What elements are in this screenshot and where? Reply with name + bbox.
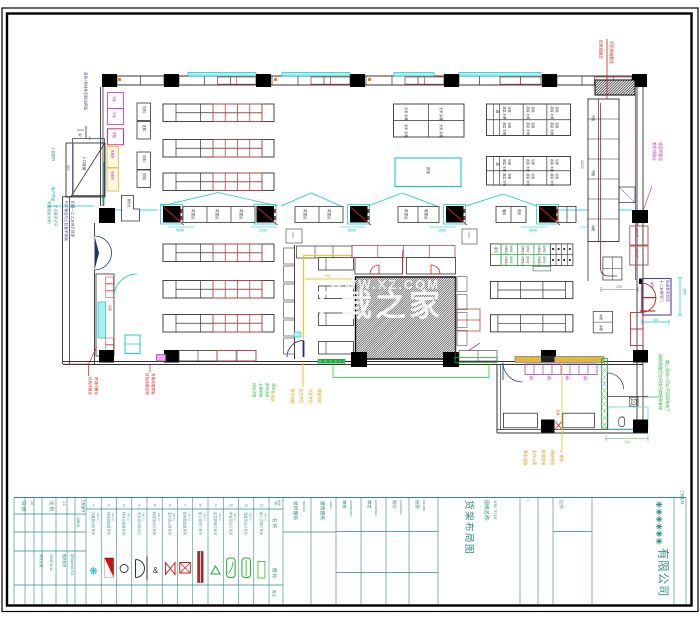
svg-text:配电: 配电 <box>556 410 560 416</box>
svg-text:2: 2 <box>108 504 110 508</box>
svg-text:货架: 货架 <box>508 159 513 165</box>
svg-text:收银台: 收银台 <box>327 209 332 220</box>
svg-text:5000: 5000 <box>176 229 184 233</box>
svg-text:DRAWN: DRAWN <box>422 500 426 511</box>
svg-text:图纸名称:: 图纸名称: <box>483 500 490 521</box>
svg-text:紫色线路走: 紫色线路走 <box>652 142 657 161</box>
svg-text:1200: 1200 <box>259 229 267 233</box>
svg-text:散称柜: 散称柜 <box>543 246 547 254</box>
svg-text:名 称: 名 称 <box>271 518 278 529</box>
svg-text:蔬菜 水果: 蔬菜 水果 <box>503 173 508 186</box>
svg-text:ARCH: ARCH <box>329 501 333 510</box>
svg-text:WWW.XZ.COM: WWW.XZ.COM <box>330 277 440 292</box>
svg-text:熟食糕点: 熟食糕点 <box>538 256 542 266</box>
svg-text:货架: 货架 <box>555 173 560 179</box>
svg-text:防火卷帘门系列: 防火卷帘门系列 <box>198 512 203 536</box>
svg-text:熟食糕点: 熟食糕点 <box>505 246 509 256</box>
svg-text:绘图:: 绘图: <box>414 500 421 510</box>
svg-text:AB-12: AB-12 <box>111 513 115 521</box>
svg-text:冰柜: 冰柜 <box>599 325 604 331</box>
svg-text:大米 杂粮: 大米 杂粮 <box>439 124 444 138</box>
svg-text:-3 51: -3 51 <box>291 231 295 238</box>
svg-text:AB-12: AB-12 <box>218 513 222 521</box>
svg-text:面包: 面包 <box>494 247 499 253</box>
svg-text:墙面明敷设: 墙面明敷设 <box>658 142 663 161</box>
svg-text:绿色线路: 绿色线路 <box>252 383 257 398</box>
svg-text:00990 M 3b: 00990 M 3b <box>49 554 53 571</box>
svg-text:货架: 货架 <box>531 173 536 179</box>
svg-text:AB-12: AB-12 <box>172 513 176 521</box>
svg-text:散称柜: 散称柜 <box>526 256 530 264</box>
svg-text:货架: 货架 <box>555 107 560 113</box>
svg-text:专用线路预留: 专用线路预留 <box>151 373 156 395</box>
svg-text:饮料柜: 饮料柜 <box>635 249 640 258</box>
svg-text:9: 9 <box>215 504 217 508</box>
svg-text:嵌入式筒灯系列: 嵌入式筒灯系列 <box>259 512 264 536</box>
svg-text:十二米卷帘门: 十二米卷帘门 <box>660 280 665 302</box>
svg-text:11: 11 <box>244 504 248 508</box>
svg-text:收银台: 收银台 <box>303 209 308 220</box>
svg-text:小区额外: 小区额外 <box>51 147 56 162</box>
svg-text:DECOR: DECOR <box>302 501 306 513</box>
svg-text:饮料: 饮料 <box>142 173 147 180</box>
svg-text:建筑图纸:: 建筑图纸: <box>319 501 326 522</box>
svg-text:冷柜: 冷柜 <box>591 115 596 122</box>
svg-text:蔬菜 水果: 蔬菜 水果 <box>550 159 555 172</box>
svg-text:货架布局图: 货架布局图 <box>463 500 475 555</box>
svg-text:蔬菜 水果: 蔬菜 水果 <box>503 159 508 172</box>
svg-text:600: 600 <box>653 318 659 322</box>
svg-text:货柜: 货柜 <box>108 305 113 311</box>
svg-text:比例:: 比例: <box>558 500 565 510</box>
svg-text:蔬菜 水果: 蔬菜 水果 <box>550 107 555 120</box>
svg-text:散称柜: 散称柜 <box>526 246 530 254</box>
svg-text:个人联不对干: 个人联不对干 <box>54 205 59 227</box>
svg-text:双管荧光灯系列: 双管荧光灯系列 <box>244 512 249 536</box>
svg-text:工程名称:: 工程名称: <box>680 490 685 505</box>
svg-text:审定:: 审定: <box>366 500 373 510</box>
svg-text:8: 8 <box>199 504 201 508</box>
svg-text:冷柜: 冷柜 <box>112 132 117 139</box>
svg-text:PVC管自与土胶套不锈钢: PVC管自与土胶套不锈钢 <box>64 201 69 241</box>
svg-text:红色线路空调: 红色线路空调 <box>145 373 150 395</box>
svg-text:AB-12: AB-12 <box>96 513 100 521</box>
svg-text:蔬菜 水果: 蔬菜 水果 <box>526 159 531 172</box>
svg-text:冰柜: 冰柜 <box>599 314 604 320</box>
svg-text:熟食糕点: 熟食糕点 <box>538 246 542 256</box>
svg-text:蔬菜 水果: 蔬菜 水果 <box>526 173 531 186</box>
svg-text:大米 杂粮: 大米 杂粮 <box>439 107 444 121</box>
svg-text:散称柜: 散称柜 <box>543 256 547 264</box>
svg-text:安全出口指示灯: 安全出口指示灯 <box>137 512 142 536</box>
svg-text:货架: 货架 <box>555 122 560 128</box>
svg-text:货架: 货架 <box>508 122 513 128</box>
svg-text:原有线路: 原有线路 <box>265 383 270 398</box>
svg-text:预留到位: 预留到位 <box>317 389 322 404</box>
svg-text:蔬菜 水果: 蔬菜 水果 <box>550 173 555 186</box>
svg-text:冷柜专用: 冷柜专用 <box>308 389 313 404</box>
svg-text:冷柜: 冷柜 <box>591 170 596 177</box>
svg-text:货架: 货架 <box>555 159 560 165</box>
svg-text:AB-12: AB-12 <box>157 513 161 521</box>
svg-text:10: 10 <box>229 504 233 508</box>
svg-text:AB-12: AB-12 <box>142 513 146 521</box>
svg-text:EXAMINED: EXAMINED <box>374 500 378 517</box>
svg-text:图纸阶段: 图纸阶段 <box>62 554 67 568</box>
svg-text:5000: 5000 <box>529 229 537 233</box>
svg-text:散称柜: 散称柜 <box>510 246 514 254</box>
svg-text:排风扇装置系列: 排风扇装置系列 <box>106 512 111 536</box>
svg-text:比 例: 比 例 <box>48 501 55 512</box>
svg-text:❋: ❋ <box>89 567 97 578</box>
svg-text:冷藏展示柜系列: 冷藏展示柜系列 <box>91 512 96 536</box>
svg-text:APPROVED: APPROVED <box>349 500 353 518</box>
svg-text:熟食糕点: 熟食糕点 <box>521 256 525 266</box>
svg-text:&: & <box>153 566 159 575</box>
svg-text:饮料: 饮料 <box>142 106 147 113</box>
svg-text:7: 7 <box>184 504 186 508</box>
svg-text:蓝色+色线条引到位预留: 蓝色+色线条引到位预留 <box>84 72 89 110</box>
svg-text:更衣: 更衣 <box>583 376 587 382</box>
svg-text:室内消火栓系列: 室内消火栓系列 <box>167 512 172 536</box>
svg-text:主照明用: 主照明用 <box>259 383 264 398</box>
svg-text:配电箱装置系列: 配电箱装置系列 <box>183 512 188 536</box>
svg-text:咨询: 咨询 <box>517 209 522 215</box>
svg-text:蔬菜 水果: 蔬菜 水果 <box>526 107 531 120</box>
svg-text:吊顶内敷设: 吊顶内敷设 <box>94 377 99 395</box>
svg-text:疏散指示灯系列: 疏散指示灯系列 <box>152 512 157 536</box>
svg-text:每户预留: 每户预留 <box>51 187 56 202</box>
svg-text:红色线路走: 红色线路走 <box>88 377 93 395</box>
svg-text:货架: 货架 <box>508 173 513 179</box>
svg-text:AB-12: AB-12 <box>203 513 207 521</box>
svg-text:-3 51: -3 51 <box>467 231 471 238</box>
svg-text:修改次数: 修改次数 <box>39 554 44 568</box>
svg-text:下载之家: 下载之家 <box>307 288 443 323</box>
svg-text:1500: 1500 <box>438 229 446 233</box>
svg-text:促销: 促销 <box>426 167 431 174</box>
svg-text:JOB TITLE: JOB TITLE <box>493 500 498 520</box>
svg-text:吊顶内暗敷设: 吊顶内暗敷设 <box>609 41 614 64</box>
svg-text:货架: 货架 <box>531 159 536 165</box>
svg-text:3. 规格: 3. 规格 <box>559 450 564 462</box>
svg-text:11500: 11500 <box>580 160 584 169</box>
svg-text:更衣: 更衣 <box>529 376 533 382</box>
svg-text:路上改动小可以不用再布线了: 路上改动小可以不用再布线了 <box>665 360 671 412</box>
svg-text:散称柜: 散称柜 <box>510 256 514 264</box>
svg-text:收银台: 收银台 <box>404 209 409 220</box>
svg-text:冷柜: 冷柜 <box>112 96 117 103</box>
svg-text:收银台: 收银台 <box>215 209 220 220</box>
svg-text:货架: 货架 <box>531 122 536 128</box>
svg-text:收银台: 收银台 <box>239 209 244 220</box>
svg-text:收银台: 收银台 <box>191 209 196 220</box>
svg-text:12: 12 <box>259 504 263 508</box>
svg-text:卷帘: 卷帘 <box>650 282 655 288</box>
svg-text:联通宽带: 联通宽带 <box>541 450 546 465</box>
svg-text:收银台: 收银台 <box>424 209 429 220</box>
svg-text:大米 杂粮: 大米 杂粮 <box>404 124 409 138</box>
svg-text:300: 300 <box>66 165 70 171</box>
svg-text:风幕柜: 风幕柜 <box>111 150 116 159</box>
svg-text:冰柜: 冰柜 <box>591 225 596 232</box>
svg-text:饮料: 饮料 <box>142 155 147 162</box>
svg-text:饮料: 饮料 <box>142 125 147 132</box>
svg-text:蔬菜 水果: 蔬菜 水果 <box>526 122 531 135</box>
svg-text:20: 20 <box>30 501 34 505</box>
svg-text:蔬菜 水果: 蔬菜 水果 <box>550 122 555 135</box>
svg-text:CHECKED: CHECKED <box>399 500 403 516</box>
svg-text:校对:: 校对: <box>391 500 398 510</box>
svg-text:绿色线路卫生间排气扇接原有线: 绿色线路卫生间排气扇接原有线 <box>658 354 664 410</box>
svg-text:应急照明灯系列: 应急照明灯系列 <box>213 512 218 536</box>
svg-text:大米 杂粮: 大米 杂粮 <box>404 107 409 121</box>
svg-text:走生鲜区: 走生鲜区 <box>299 389 304 404</box>
svg-text:蔬菜 水果: 蔬菜 水果 <box>503 107 508 120</box>
svg-text:走办公用: 走办公用 <box>532 450 537 465</box>
svg-text:入口坡道: 入口坡道 <box>82 156 87 171</box>
svg-text:预给到位: 预给到位 <box>550 450 555 465</box>
svg-text:单管荧光灯系列: 单管荧光灯系列 <box>228 512 233 536</box>
svg-text:喷淋头装置系列: 喷淋头装置系列 <box>122 512 127 536</box>
svg-text:冷柜: 冷柜 <box>112 112 117 119</box>
svg-text:熟食糕点: 熟食糕点 <box>521 246 525 256</box>
svg-text:1:1: 1:1 <box>62 501 66 506</box>
svg-text:专用线会示安+: 专用线会示安+ <box>47 201 52 225</box>
svg-text:审核:: 审核: <box>341 500 348 510</box>
svg-text:AB-12: AB-12 <box>264 513 268 521</box>
svg-text:AB-12: AB-12 <box>126 513 130 521</box>
svg-text:AB-12: AB-12 <box>233 513 237 521</box>
svg-text:700: 700 <box>624 441 630 445</box>
svg-text:货架: 货架 <box>508 107 513 113</box>
svg-text:3.预给: 3.预给 <box>270 391 275 402</box>
svg-text:6: 6 <box>169 504 171 508</box>
svg-text:黄色线路: 黄色线路 <box>290 389 295 404</box>
svg-text:黄色线路: 黄色线路 <box>523 450 528 465</box>
svg-text:有限公司: 有限公司 <box>657 548 671 597</box>
svg-text:DRAWING NO.: DRAWING NO. <box>70 554 74 576</box>
svg-text:✳✳✳✳✳✳: ✳✳✳✳✳✳ <box>654 501 664 546</box>
svg-text:备注: 备注 <box>272 590 277 598</box>
svg-text:工程编号: 工程编号 <box>81 499 86 513</box>
svg-text:3: 3 <box>123 504 125 508</box>
svg-text:1580: 1580 <box>616 285 623 289</box>
svg-text:1: 1 <box>93 504 95 508</box>
svg-text:JOB ID: JOB ID <box>76 517 80 528</box>
svg-text:AB-12: AB-12 <box>248 513 252 521</box>
svg-text:更衣: 更衣 <box>565 376 569 382</box>
svg-text:服务台: 服务台 <box>127 199 131 208</box>
svg-text:服务: 服务 <box>502 209 507 216</box>
svg-text:饮料柜: 饮料柜 <box>635 229 640 238</box>
svg-text:扣圈一工上方的示间距: 扣圈一工上方的示间距 <box>71 201 76 237</box>
svg-text:3600: 3600 <box>683 288 687 295</box>
svg-text:防盗卷帘到顶: 防盗卷帘到顶 <box>666 280 671 302</box>
svg-text:更衣: 更衣 <box>547 376 551 382</box>
svg-text:5000: 5000 <box>348 229 356 233</box>
svg-text:风幕柜: 风幕柜 <box>111 171 116 180</box>
svg-text:货架: 货架 <box>531 107 536 113</box>
svg-text:蔬菜 水果: 蔬菜 水果 <box>503 122 508 135</box>
svg-text:5: 5 <box>154 504 156 508</box>
svg-text:4: 4 <box>138 504 140 508</box>
svg-text:AB-12: AB-12 <box>187 513 191 521</box>
svg-text:红色线路走: 红色线路走 <box>599 40 604 59</box>
svg-text:条号: 条号 <box>277 500 282 506</box>
svg-text:图 标: 图 标 <box>271 568 278 579</box>
svg-text:熟食糕点: 熟食糕点 <box>505 256 509 266</box>
svg-text:装修图纸:: 装修图纸: <box>292 501 299 522</box>
